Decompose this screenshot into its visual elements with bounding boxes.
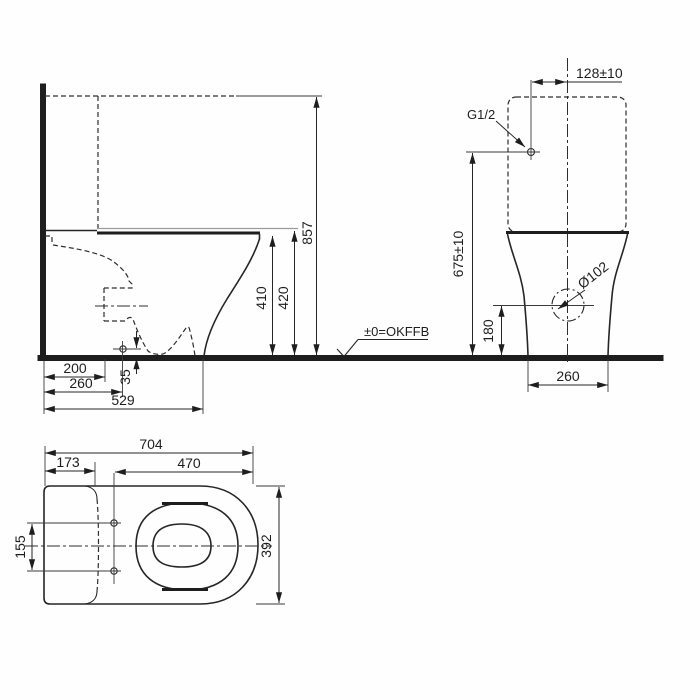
dim-392: 392: [258, 487, 279, 603]
bowl-right-outline: [608, 234, 628, 356]
level-check-symbol: [337, 340, 358, 357]
dim-857: 857: [299, 97, 317, 355]
dim-529: 529: [44, 392, 203, 409]
drain-callout: Ø102: [558, 258, 612, 309]
dim-200-label: 200: [63, 360, 87, 376]
floor-reference: ±0=OKFFB: [337, 324, 429, 357]
dim-260-side-label: 260: [69, 375, 93, 391]
dim-675: 675±10: [450, 153, 473, 355]
drain-diameter-label: Ø102: [575, 258, 612, 292]
divider-top-corner: [85, 486, 97, 499]
floor-reference-label: ±0=OKFFB: [364, 324, 429, 339]
side-view: 857 420 410 35 200 260 529: [38, 84, 663, 414]
dim-128: 128±10: [532, 65, 623, 82]
dim-470: 470: [115, 455, 253, 472]
dim-180: 180: [480, 306, 502, 355]
front-view: G1/2 128±10 675±10 Ø102 180: [450, 58, 629, 392]
dim-260-side: 260: [44, 375, 122, 392]
divider-dashed: [97, 499, 99, 591]
dim-128-label: 128±10: [576, 65, 623, 81]
dim-392-label: 392: [258, 534, 274, 558]
plan-outline: [44, 486, 258, 604]
dim-410-label: 410: [253, 286, 269, 310]
bowl-profile: [204, 234, 260, 356]
dim-410: 410: [253, 236, 273, 355]
dim-173-label: 173: [56, 454, 80, 470]
dim-173: 173: [45, 454, 95, 471]
dim-529-label: 529: [111, 392, 135, 408]
dim-704-label: 704: [139, 436, 163, 452]
trap-upper-dashed: [53, 245, 132, 288]
supply-thread-callout: G1/2: [467, 107, 525, 147]
trap-lower-dashed: [104, 317, 195, 356]
dim-260-front-label: 260: [556, 368, 580, 384]
supply-leader: [496, 121, 525, 147]
dim-470-label: 470: [177, 455, 201, 471]
trap-hook-dashed: [45, 236, 52, 242]
dim-420: 420: [275, 231, 295, 355]
dim-155: 155: [12, 524, 32, 570]
dim-155-label: 155: [12, 535, 28, 559]
supply-thread-label: G1/2: [467, 107, 495, 122]
drain-leader: [558, 290, 585, 309]
dim-857-label: 857: [299, 221, 315, 245]
drawing-canvas: 857 420 410 35 200 260 529: [0, 0, 700, 700]
dim-675-label: 675±10: [450, 230, 466, 277]
dim-704: 704: [45, 436, 253, 453]
floor-line: [38, 356, 663, 361]
bowl-left-outline: [508, 234, 529, 356]
dim-35-label: 35: [117, 369, 133, 385]
wall: [41, 84, 46, 359]
dim-420-label: 420: [275, 286, 291, 310]
plan-view: 704 173 470 155 392: [12, 436, 285, 604]
technical-drawing-page: 857 420 410 35 200 260 529: [0, 0, 700, 700]
dim-180-label: 180: [480, 319, 496, 343]
dim-260-front: 260: [528, 368, 608, 385]
divider-bottom-corner: [85, 591, 97, 604]
